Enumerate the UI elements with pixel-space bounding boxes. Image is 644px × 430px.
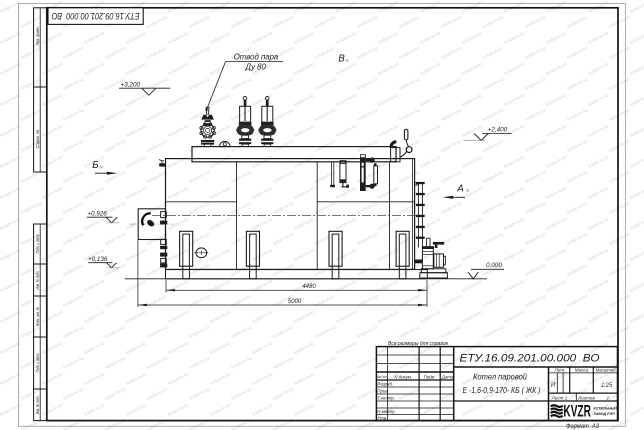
svg-text:5000: 5000 (288, 299, 302, 305)
svg-text:1:25: 1:25 (601, 382, 612, 389)
svg-text:Инв. № подл.: Инв. № подл. (35, 395, 40, 414)
svg-text:+0,136: +0,136 (88, 256, 108, 263)
svg-text:Лист 1: Лист 1 (551, 396, 568, 401)
svg-text:N докум.: N докум. (394, 374, 412, 379)
svg-text:4480: 4480 (302, 284, 316, 290)
svg-text:Масштаб: Масштаб (596, 368, 616, 373)
svg-text:Утв.: Утв. (377, 415, 387, 420)
svg-text:Ду 80: Ду 80 (245, 62, 267, 71)
svg-text:0,000: 0,000 (486, 262, 502, 269)
svg-text:Все размеры для справок: Все размеры для справок (388, 341, 448, 347)
svg-text:Б: Б (92, 160, 99, 171)
svg-text:+0,926: +0,926 (87, 211, 107, 218)
svg-text:Отвод пара: Отвод пара (234, 53, 279, 62)
svg-text:Разраб.: Разраб. (377, 382, 393, 387)
svg-text:Взам. инв. №: Взам. инв. № (35, 307, 40, 326)
svg-text:ЗАВОД РЭП: ЗАВОД РЭП (593, 412, 615, 416)
svg-text:Подп. и дата: Подп. и дата (35, 234, 40, 253)
svg-text:ЕТУ.16.09.201.00.000 ВО: ЕТУ.16.09.201.00.000 ВО (460, 353, 600, 365)
svg-text:Подп.: Подп. (424, 374, 436, 379)
svg-text:Лит.: Лит. (554, 368, 566, 373)
svg-text:Справ. №: Справ. № (35, 129, 40, 148)
svg-text:2: 2 (605, 396, 609, 401)
svg-text:Изм Лист: Изм Лист (377, 375, 387, 379)
svg-text:Листов: Листов (577, 396, 595, 401)
svg-text:И: И (551, 382, 556, 389)
svg-text:Формат А3: Формат А3 (566, 423, 599, 430)
svg-text:Н.контр.: Н.контр. (377, 409, 396, 414)
svg-text:А: А (456, 184, 464, 195)
svg-text:В: В (338, 53, 345, 64)
svg-text:+2,400: +2,400 (488, 127, 508, 134)
svg-text:+3,200: +3,200 (121, 82, 141, 89)
svg-text:Т.контр.: Т.контр. (377, 396, 395, 401)
svg-text:Е -1,6-0,9-170- КБ ( ЖК ): Е -1,6-0,9-170- КБ ( ЖК ) (463, 385, 541, 395)
svg-text:КОТЕЛЬНЫЙ: КОТЕЛЬНЫЙ (593, 406, 617, 410)
svg-text:Перв. примен.: Перв. примен. (35, 27, 40, 46)
svg-text:ЕТУ.16.09.201.00.000 ВО: ЕТУ.16.09.201.00.000 ВО (51, 11, 139, 21)
svg-text:Пров.: Пров. (377, 389, 389, 394)
svg-text:Дата: Дата (441, 374, 454, 379)
svg-text:Подп. и дата: Подп. и дата (35, 353, 40, 372)
svg-text:KVZR: KVZR (563, 402, 591, 420)
svg-text:Инв. № дубл.: Инв. № дубл. (35, 271, 40, 290)
svg-text:Котел паровой: Котел паровой (473, 372, 527, 382)
svg-text:Масса: Масса (575, 368, 589, 373)
